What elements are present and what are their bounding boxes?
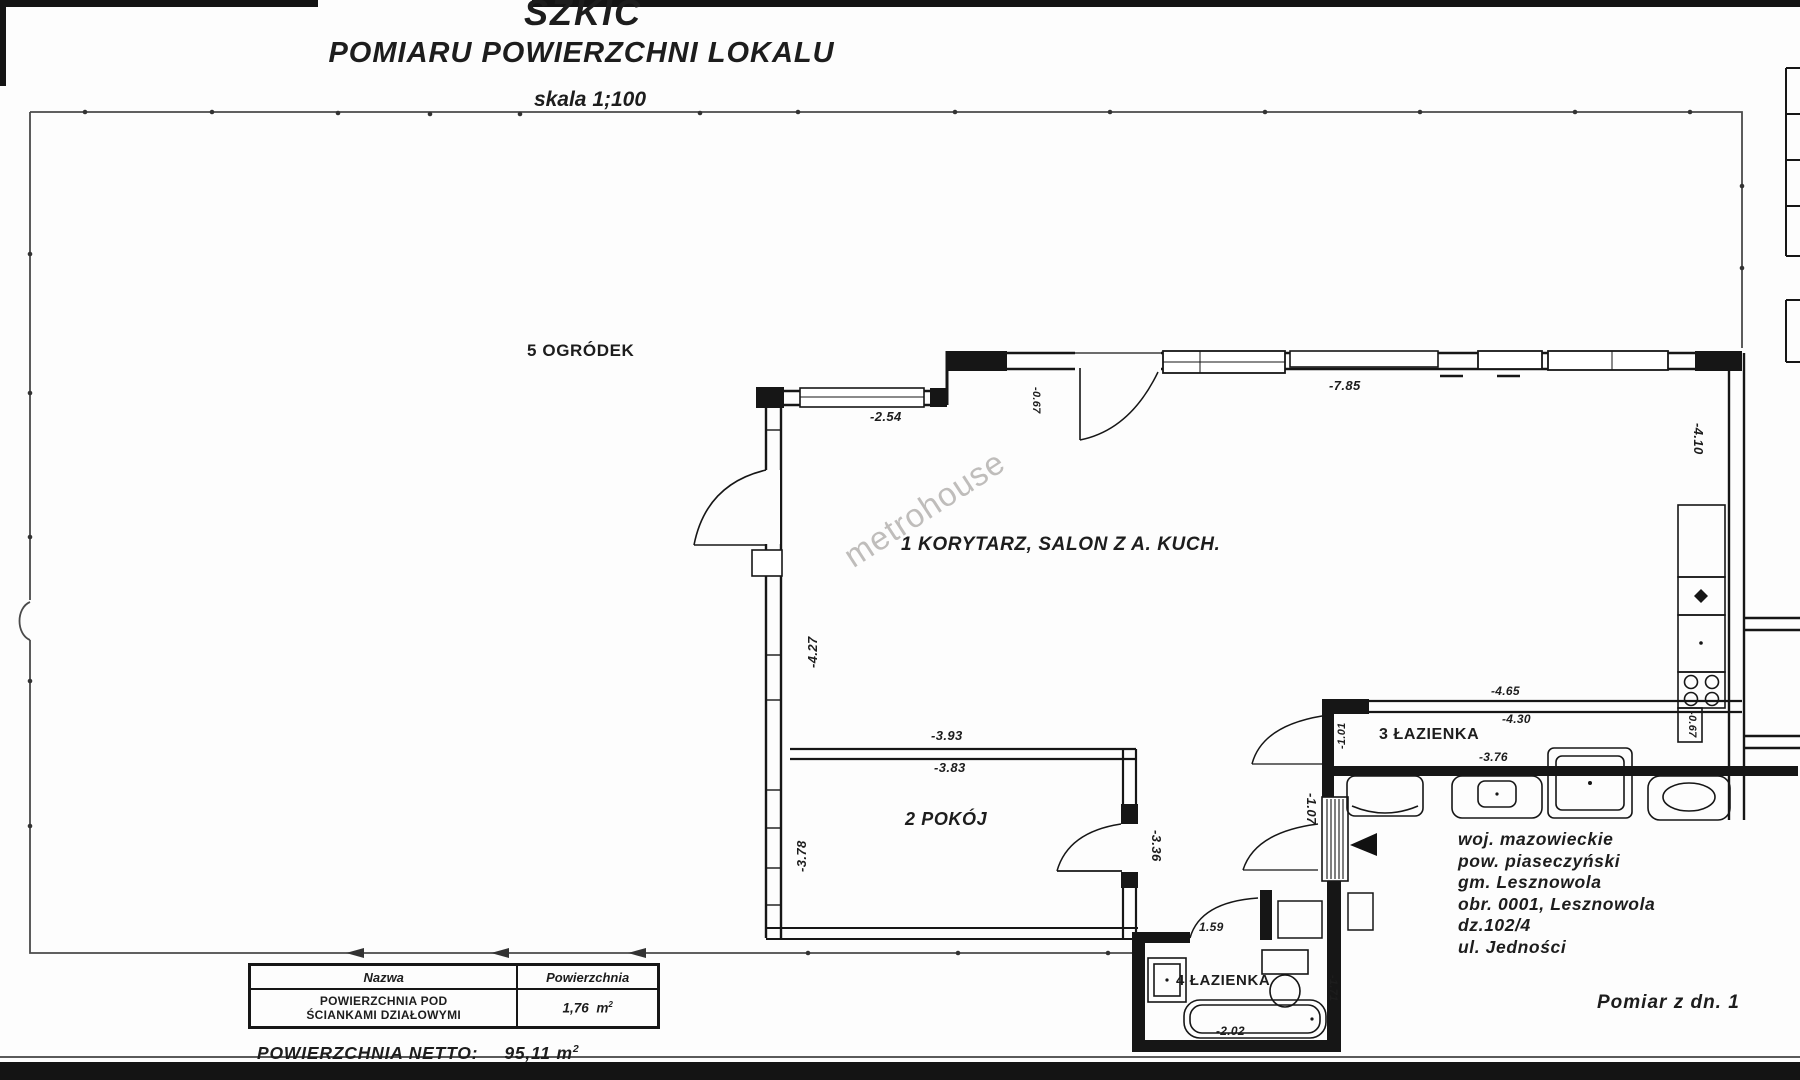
area-table-row-name-line1: POWIERZCHNIA POD — [320, 994, 448, 1008]
corner-table-fragment — [1786, 68, 1800, 362]
dim-pokoj-width-inner: -3.83 — [934, 761, 966, 775]
dim-kitchen-edge: -0.67 — [1685, 711, 1697, 738]
parcel-plot: dz.102/4 — [1458, 915, 1655, 937]
net-area-unit: m — [556, 1043, 572, 1063]
room-label-ogrodek: 5 OGRÓDEK — [527, 342, 634, 360]
area-table-header-name: Nazwa — [251, 966, 518, 988]
parcel-street: ul. Jedności — [1458, 937, 1655, 959]
dim-right-wall: -4.10 — [1691, 423, 1705, 455]
dim-bath4-door: 1.59 — [1199, 921, 1224, 934]
area-value: 1,76 — [563, 1001, 589, 1016]
parcel-info-block: woj. mazowieckie pow. piaseczyński gm. L… — [1458, 829, 1655, 958]
sketch-scale: skala 1;100 — [490, 89, 690, 111]
dim-pokoj-width-outer: -3.93 — [931, 729, 963, 743]
parcel-county: pow. piaseczyński — [1458, 851, 1655, 873]
parcel-voivodeship: woj. mazowieckie — [1458, 829, 1655, 851]
dim-bath4-tub: -2.02 — [1216, 1025, 1245, 1038]
dim-pokoj-right: -3.36 — [1149, 830, 1163, 862]
room-label-lazienka3: 3 ŁAZIENKA — [1379, 727, 1479, 744]
area-table-row-name: POWIERZCHNIA POD ŚCIANKAMI DZIAŁOWYMI — [251, 990, 518, 1026]
area-table: Nazwa Powierzchnia POWIERZCHNIA POD ŚCIA… — [248, 963, 660, 1029]
measurement-date-note: Pomiar z dn. 1 — [1597, 993, 1740, 1013]
room-label-salon: 1 KORYTARZ, SALON Z A. KUCH. — [901, 535, 1220, 555]
net-area-unit-sup: 2 — [573, 1043, 580, 1055]
dim-bath4-depth: -1.71 — [1326, 975, 1338, 1002]
area-table-row: POWIERZCHNIA POD ŚCIANKAMI DZIAŁOWYMI 1,… — [251, 990, 657, 1026]
kitchen-fixtures — [1678, 505, 1725, 742]
parcel-precinct: obr. 0001, Lesznowola — [1458, 894, 1655, 916]
dim-top-step: -0.67 — [1029, 387, 1041, 414]
net-area-value: 95,11 — [504, 1043, 551, 1063]
net-area-label: POWIERZCHNIA NETTO: — [257, 1043, 478, 1063]
sketch-subtitle: POMIARU POWIERZCHNI LOKALU — [300, 38, 863, 68]
area-table-row-value: 1,76 m2 — [518, 990, 657, 1026]
area-table-header-area: Powierzchnia — [518, 966, 657, 988]
entrance-arrow-marker — [1350, 833, 1377, 856]
area-table-row-name-line2: ŚCIANKAMI DZIAŁOWYMI — [306, 1008, 461, 1022]
dim-hall-width: -1.07 — [1304, 793, 1318, 825]
dim-bath3-depth: -1.01 — [1337, 722, 1349, 749]
room-label-pokoj: 2 POKÓJ — [905, 810, 987, 829]
area-unit: m — [596, 1001, 608, 1016]
floorplan-sketch-page: SZKIC POMIARU POWIERZCHNI LOKALU skala 1… — [0, 0, 1800, 1080]
net-area-line: POWIERZCHNIA NETTO:95,11 m2 — [257, 1043, 580, 1064]
dim-bath3-width: -3.76 — [1479, 751, 1508, 764]
area-table-header-row: Nazwa Powierzchnia — [251, 966, 657, 990]
room-label-lazienka4: 4 ŁAZIENKA — [1176, 973, 1270, 989]
bathroom3-fixtures — [1347, 748, 1730, 820]
sketch-title: SZKIC — [433, 0, 733, 32]
dim-bath3-width-inner: -4.30 — [1502, 713, 1531, 726]
dim-pokoj-left: -3.78 — [795, 840, 809, 872]
dim-top-left-section: -2.54 — [870, 410, 902, 424]
area-unit-sup: 2 — [608, 1000, 613, 1009]
dim-top-wall: -7.85 — [1329, 379, 1361, 393]
parcel-commune: gm. Lesznowola — [1458, 872, 1655, 894]
dim-left-wall: -4.27 — [806, 636, 820, 668]
dim-bath3-width-outer: -4.65 — [1491, 685, 1520, 698]
